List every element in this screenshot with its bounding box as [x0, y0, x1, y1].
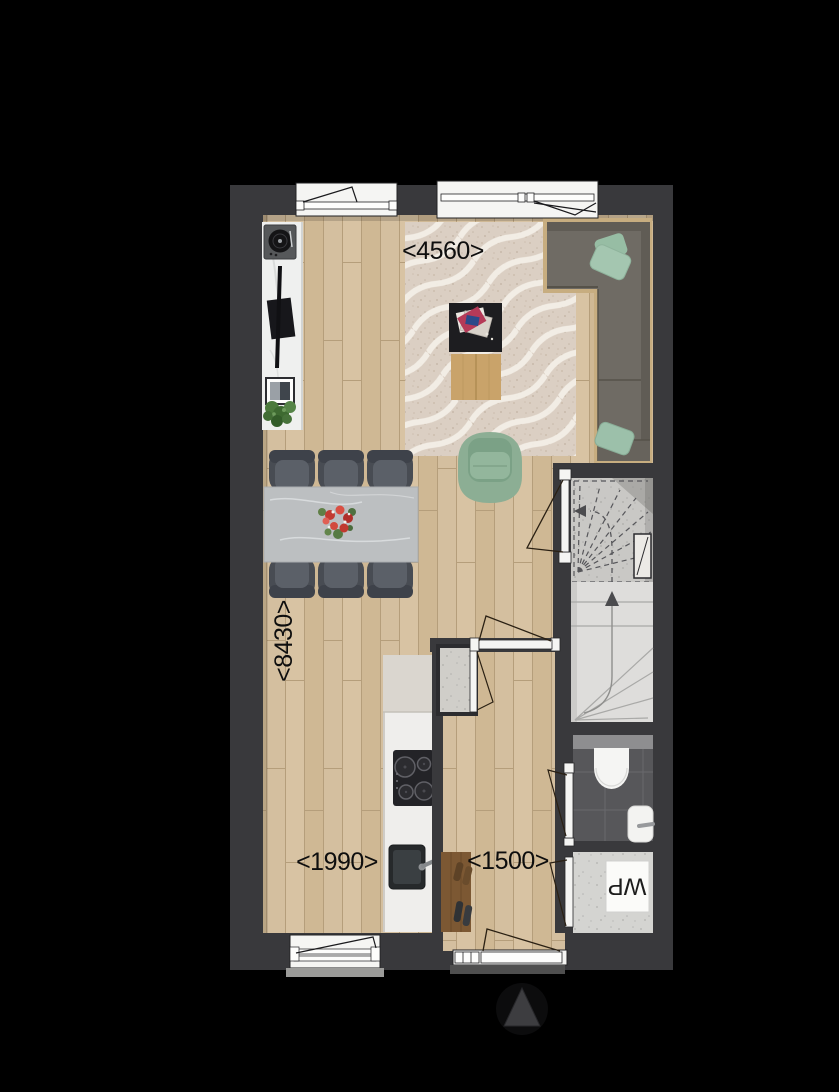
- window-sill: [286, 968, 384, 977]
- tv-sideboard: [262, 222, 303, 430]
- toilet-room: [573, 735, 653, 842]
- dining-table: [264, 487, 418, 562]
- dimension-label-living-width: <4560>: [402, 237, 484, 265]
- record-player-icon: [264, 225, 296, 259]
- floorplan-canvas: WP: [0, 0, 839, 1092]
- picture-frame-icon: [266, 378, 294, 404]
- door-threshold: [450, 965, 565, 974]
- dimension-label-house-depth: <8430>: [270, 600, 298, 682]
- floorplan-drawing: WP: [0, 0, 839, 1092]
- dimension-label-hall-width: <1500>: [467, 847, 549, 875]
- north-arrow-icon: [496, 983, 548, 1035]
- meter-closet-door: [470, 650, 477, 712]
- staircase: [571, 478, 653, 722]
- kitchen-appliance: [383, 655, 434, 712]
- heat-pump-closet: WP: [573, 852, 653, 933]
- dining-chair: [269, 450, 315, 492]
- window-living-left: [296, 183, 397, 216]
- window-garden-doors: [437, 181, 598, 218]
- toilet-icon: [594, 748, 629, 789]
- dining-chair: [318, 450, 364, 492]
- heat-pump-label: WP: [608, 873, 647, 900]
- cistern-shelf: [573, 735, 653, 749]
- window-kitchen: [286, 935, 384, 977]
- armchair: [458, 432, 522, 503]
- coffee-table-set: [449, 303, 502, 400]
- dimension-label-kitchen-width: <1990>: [296, 848, 378, 876]
- induction-hob-icon: [393, 750, 434, 806]
- dining-chair: [367, 450, 413, 492]
- kitchen-counter: [383, 655, 434, 932]
- hand-basin-icon: [628, 806, 653, 842]
